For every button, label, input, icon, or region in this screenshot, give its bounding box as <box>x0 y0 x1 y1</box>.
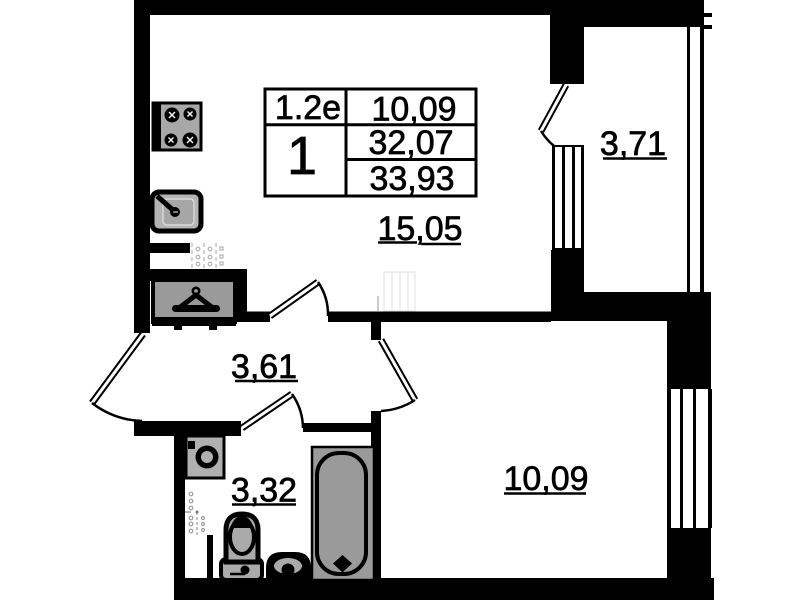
svg-text:32,07: 32,07 <box>368 124 453 162</box>
svg-text:10,09: 10,09 <box>371 91 456 129</box>
svg-text:1: 1 <box>287 126 317 186</box>
svg-text:1.2е: 1.2е <box>275 89 341 127</box>
svg-text:33,93: 33,93 <box>369 160 454 198</box>
